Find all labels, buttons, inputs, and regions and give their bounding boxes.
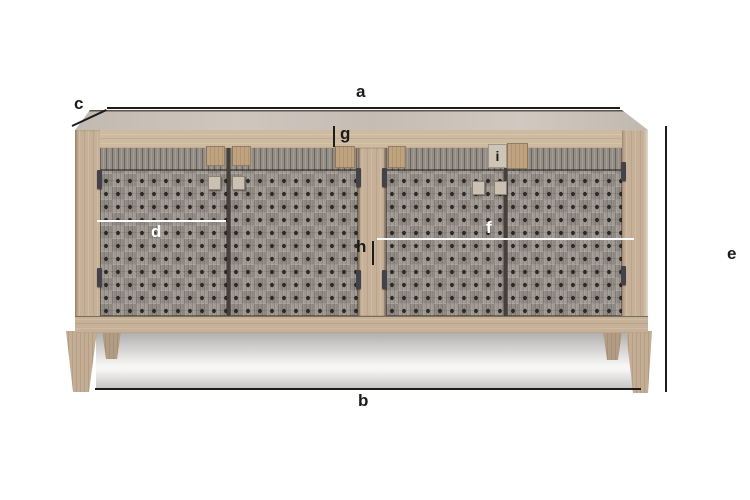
dimension-label-f: f xyxy=(486,219,492,236)
dimension-line-e xyxy=(665,126,667,392)
dimension-line-g xyxy=(333,126,335,147)
dimension-label-h: h xyxy=(356,238,366,255)
dimension-label-b: b xyxy=(358,392,368,409)
dimension-label-e: e xyxy=(727,245,736,262)
dimension-label-d: d xyxy=(151,223,161,240)
dimension-label-a: a xyxy=(356,83,365,100)
dimension-line-b xyxy=(95,388,641,390)
dimension-label-g: g xyxy=(340,125,350,142)
dimension-annotations: a b c d e f g h i xyxy=(0,0,750,500)
dimension-line-h xyxy=(372,241,374,265)
dimension-line-f xyxy=(377,238,634,240)
dimension-line-a xyxy=(107,107,620,109)
dimension-label-i: i xyxy=(496,149,500,163)
dimension-label-c: c xyxy=(74,95,83,112)
dimension-marker-i-square: i xyxy=(488,144,507,168)
product-dimension-image: a b c d e f g h i xyxy=(0,0,750,500)
dimension-line-d xyxy=(97,220,226,222)
